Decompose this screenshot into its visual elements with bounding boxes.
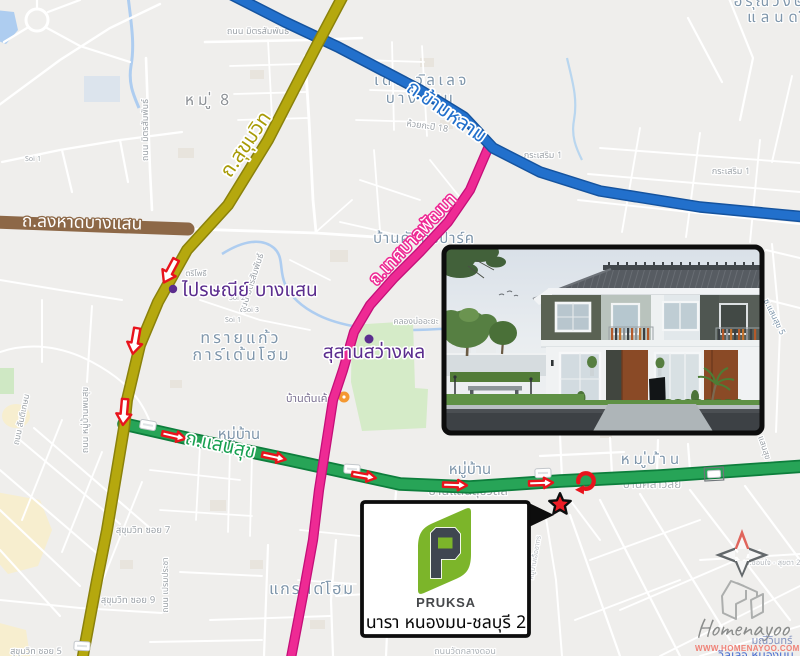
svg-text:WWW.HOMENAYOO.COM: WWW.HOMENAYOO.COM: [695, 644, 800, 653]
svg-text:PRUKSA: PRUKSA: [416, 595, 476, 610]
